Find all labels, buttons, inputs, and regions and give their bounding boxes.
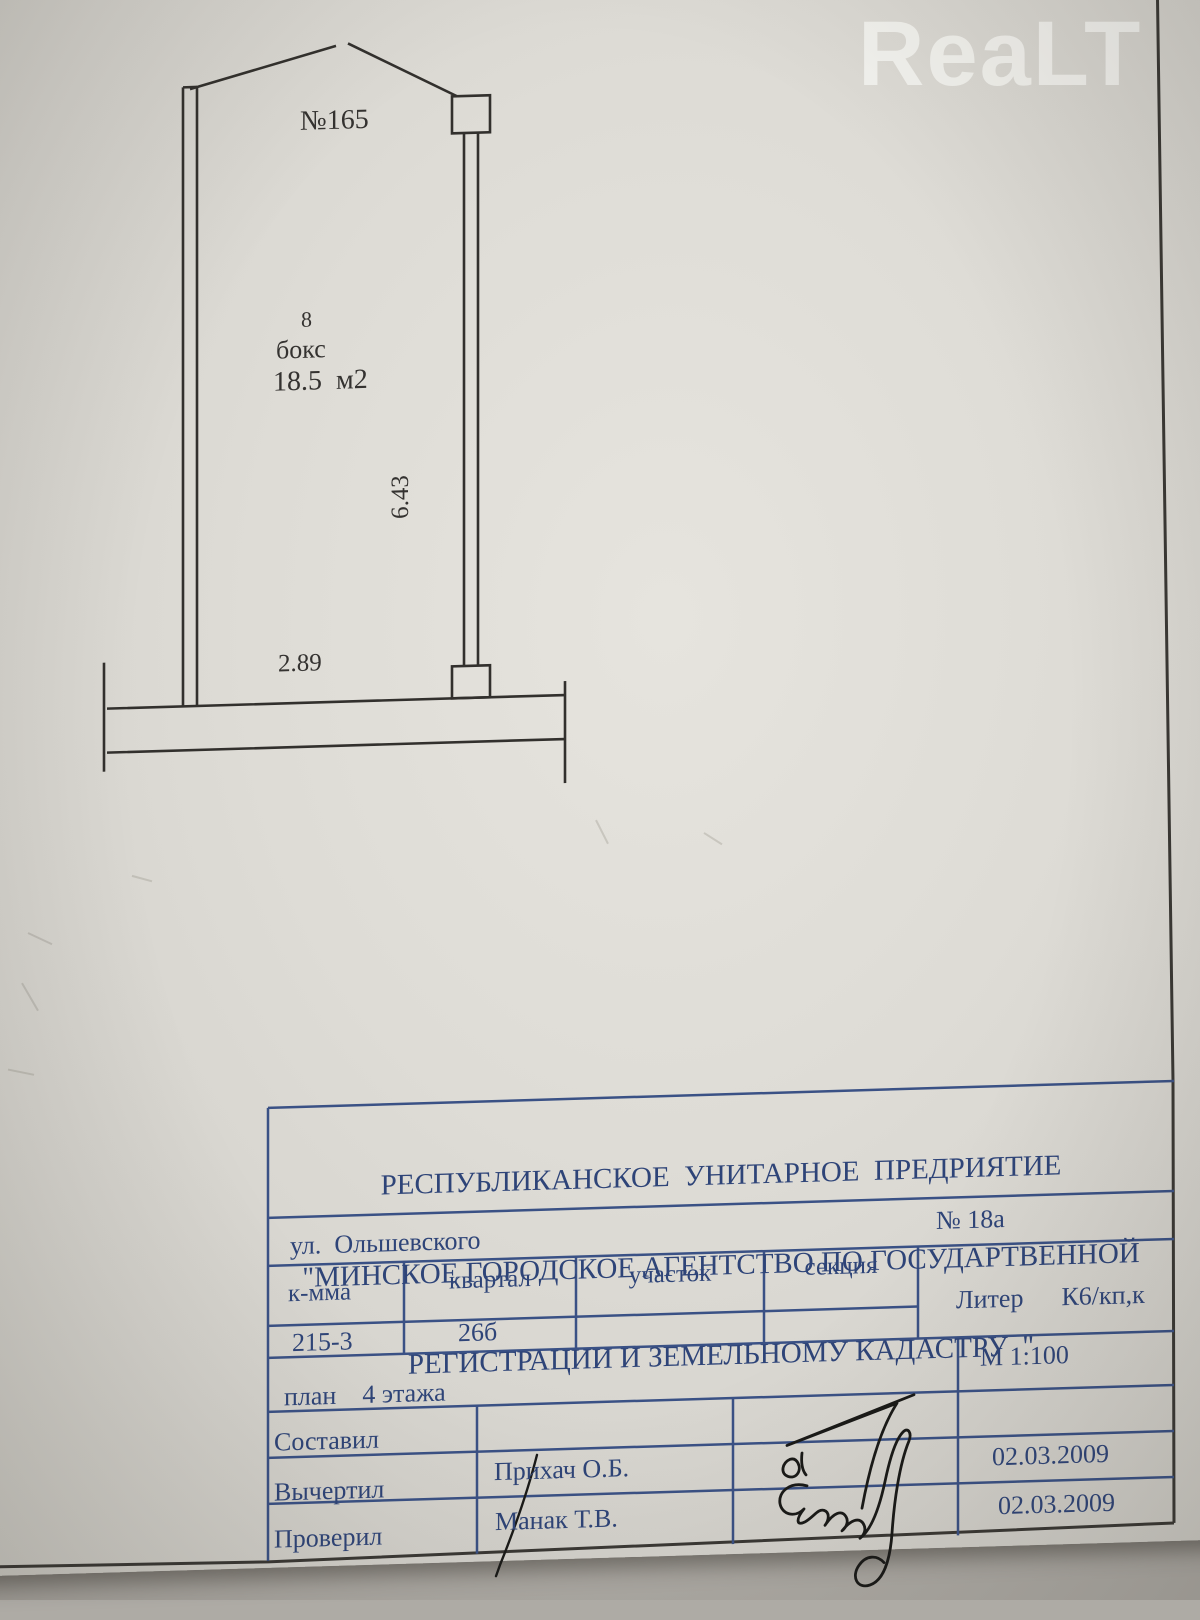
row-label-sostavil: Составил [274,1426,379,1456]
paper-sheet: №165 8 бокс 18.5 м2 6.43 2.89 РЕСПУБЛИКА… [0,0,1200,1578]
liter-cell: Литер К6/кп,к [956,1280,1145,1316]
area-label: 18.5 м2 [273,365,368,397]
column-header-kvartal: квартал [404,1265,576,1296]
kmma-value: 215-3 [292,1327,353,1356]
column-header-kmma: к-мма [288,1279,351,1307]
org-name-line1: РЕСПУБЛИКАНСКОЕ УНИТАРНОЕ ПРЕДРИЯТИЕ [268,1147,1174,1204]
street-label: ул. Ольшевского [290,1227,481,1260]
room-type-label: бокс [276,335,326,364]
unit-number-label: №165 [300,105,369,136]
realt-watermark: ReaLT [858,2,1142,107]
plan-caption: план 4 этажа [284,1379,446,1411]
row-label-vychertil: Вычертил [274,1475,384,1506]
checked-by-name: Манак Т.В. [495,1504,618,1535]
liter-label: Литер [956,1283,1023,1315]
column-header-sekciya: секция [764,1252,918,1283]
sheet-content: №165 8 бокс 18.5 м2 6.43 2.89 РЕСПУБЛИКА… [0,0,1200,1618]
length-dimension-label: 6.43 [388,467,414,528]
checked-date: 02.03.2009 [998,1489,1115,1520]
row-label-proveril: Проверил [274,1522,382,1553]
room-number-label: 8 [301,308,312,331]
house-number-label: № 18а [936,1205,1005,1234]
photographed-document: { "watermark": { "brand": "ReaLT" }, "pl… [0,0,1200,1600]
drafted-date: 02.03.2009 [992,1440,1109,1471]
width-dimension-label: 2.89 [278,650,322,678]
column-header-uchastok: участок [576,1259,764,1291]
floor-plan-lines [104,37,565,797]
drafted-by-name: Прихач О.Б. [494,1454,629,1485]
scale-label: М 1:100 [980,1341,1069,1371]
liter-value: К6/кп,к [1061,1280,1144,1312]
kvartal-value: 26б [458,1318,497,1346]
photo-smudges [8,816,722,1075]
